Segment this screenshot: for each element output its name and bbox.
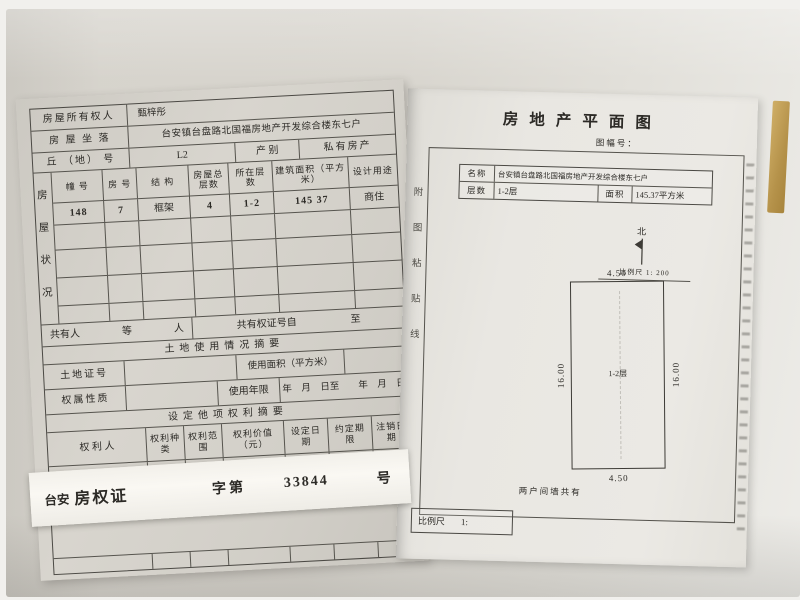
coowner-ren: 人 [174, 323, 185, 335]
empty-cell [233, 267, 278, 296]
empty-cell [191, 241, 232, 270]
empty-cell [54, 223, 105, 250]
dimension-top: 4.50 [571, 268, 663, 279]
unit-floors-label: 1-2层 [572, 367, 664, 379]
dimension-right: 16.00 [671, 362, 681, 387]
photo-background: 房屋所有权人 甄梓彤 房 屋 坐 落 台安镇台盘路北国福房地产开发综合楼东七户 … [6, 9, 800, 597]
empty-cell [277, 263, 354, 294]
total-floors-value: 4 [189, 194, 230, 217]
col-header-block-no: 幢 号 [52, 170, 104, 203]
sheet-number-label: 图幅号： [596, 136, 638, 149]
empty-cell [353, 261, 403, 291]
category-label: 产 别 [234, 140, 299, 162]
info-area-value: 145.37平方米 [631, 186, 711, 204]
empty-cell [106, 246, 141, 275]
empty-cell [190, 550, 229, 567]
rights-header-set-date: 设定日期 [283, 419, 329, 454]
dimension-left: 16.00 [556, 363, 566, 388]
coowner-cert-from: 共有权证号自 [236, 317, 297, 332]
empty-cell [275, 235, 352, 266]
building-status-section: 房屋状况 幢 号 房 号 结 构 房屋总层数 所在层数 建筑面积（平方米） 设计… [34, 154, 404, 325]
rights-header-kind: 权利种类 [145, 426, 185, 461]
strip-zi-label: 字第 [211, 476, 246, 498]
empty-cell [228, 547, 291, 565]
land-cert-label: 土地证号 [44, 361, 125, 389]
rights-header-holder: 权 利 人 [47, 428, 147, 466]
structure-value: 框架 [137, 197, 190, 221]
info-name-label: 名称 [460, 165, 494, 182]
floor-plan-title: 房地产平面图 [407, 104, 757, 135]
scale-box-value: 1: [461, 517, 468, 527]
unit-plan-rectangle: 4.50 4.50 16.00 16.00 1-2层 [570, 281, 666, 470]
col-header-floor-area: 建筑面积（平方米） [271, 157, 348, 191]
empty-cell [54, 554, 153, 574]
floor-plan-page: 房地产平面图 图幅号： 附图粘贴线 名称 台安镇台盘路北国福房地产开发综合楼东七… [396, 88, 758, 567]
north-arrow: 北 [633, 227, 650, 266]
empty-cell [59, 304, 110, 324]
empty-cell [333, 542, 378, 559]
designed-use-value: 商住 [349, 186, 399, 210]
rights-header-value: 权利价值（元） [221, 421, 285, 457]
col-header-designed-use: 设计用途 [347, 155, 398, 188]
room-no-value: 7 [103, 199, 138, 222]
empty-cell [343, 346, 407, 373]
strip-title: 房权证 [74, 482, 129, 509]
folder-edge [767, 101, 790, 214]
empty-cell [141, 271, 194, 301]
col-header-room-no: 房 号 [101, 168, 137, 200]
empty-cell [351, 233, 401, 263]
empty-cell [125, 381, 218, 410]
empty-cell [108, 302, 143, 321]
located-floors-value: 1-2 [229, 192, 274, 215]
block-no-value: 148 [53, 201, 104, 225]
plan-border-box: 名称 台安镇台盘路北国福房地产开发综合楼东七户 层数 1-2层 面积 145.3… [419, 147, 745, 523]
coowner-deng: 等 [122, 325, 133, 337]
info-floors-label: 层数 [459, 182, 493, 199]
col-header-located-floors: 所在层数 [227, 161, 273, 193]
info-area-label: 面积 [597, 185, 631, 202]
empty-cell [142, 299, 195, 319]
empty-cell [138, 219, 191, 246]
empty-cell [104, 221, 139, 247]
empty-cell [274, 210, 351, 238]
empty-cell [234, 295, 279, 314]
empty-cell [231, 239, 276, 268]
empty-cell [190, 216, 231, 242]
empty-cell [140, 243, 193, 273]
rights-header-scope: 权利范围 [183, 424, 223, 459]
info-floors-value: 1-2层 [493, 183, 597, 202]
certificate-number: 33844 [283, 473, 329, 492]
empty-cell [152, 552, 191, 569]
empty-cell [289, 544, 334, 561]
strip-hao-label: 号 [376, 467, 391, 488]
building-subtable: 幢 号 房 号 结 构 房屋总层数 所在层数 建筑面积（平方米） 设计用途 14… [52, 155, 404, 324]
col-header-total-floors: 房屋总层数 [187, 163, 229, 195]
north-arrow-icon [633, 236, 650, 266]
coowner-cert-to: 至 [350, 313, 361, 325]
empty-cell [57, 276, 108, 306]
floor-area-value: 145 37 [273, 188, 350, 213]
land-nature-label: 权属性质 [45, 386, 126, 414]
plan-info-table: 名称 台安镇台盘路北国福房地产开发综合楼东七户 层数 1-2层 面积 145.3… [458, 164, 713, 206]
empty-cell [230, 214, 275, 240]
empty-cell [107, 274, 142, 303]
paste-line-label: 附图粘贴线 [405, 187, 424, 365]
shared-wall-note: 两户间墙共有 [519, 485, 582, 499]
north-label: 北 [637, 228, 646, 237]
col-header-structure: 结 构 [135, 166, 188, 199]
empty-cell [56, 248, 107, 278]
empty-cell [194, 297, 235, 316]
dimension-bottom: 4.50 [573, 473, 665, 484]
coowner-label: 共有人 [50, 328, 81, 341]
rights-header-term: 约定期限 [327, 416, 373, 451]
empty-cell [350, 208, 400, 235]
land-years-label: 使用年限 [217, 378, 280, 405]
scale-box: 比例尺 1: [411, 508, 514, 536]
scale-box-label: 比例尺 [418, 514, 445, 528]
empty-cell [354, 288, 404, 308]
strip-city: 台安 [44, 488, 70, 509]
empty-cell [193, 269, 234, 298]
